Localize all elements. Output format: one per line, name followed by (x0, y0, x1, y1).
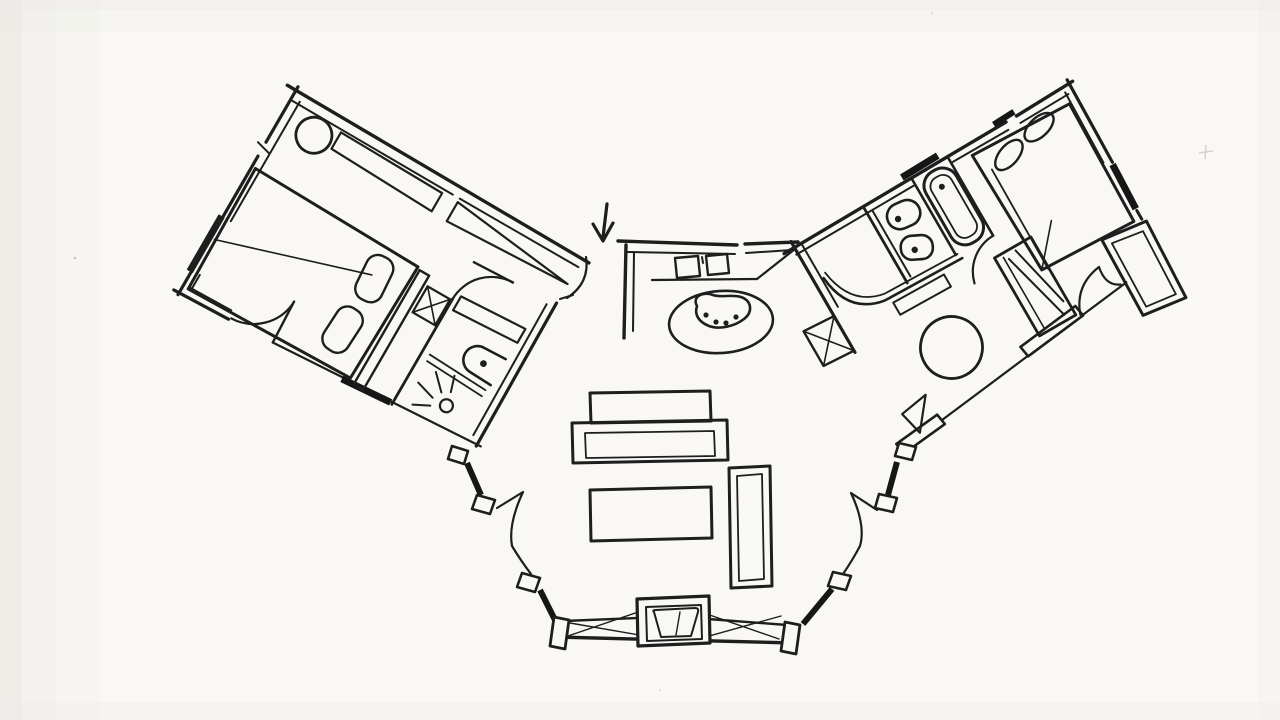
speck (74, 257, 77, 260)
kitchen-left-wall-outer (624, 245, 626, 338)
speck (659, 689, 661, 691)
seat-dot (733, 314, 738, 319)
kitchen-left-wall-inner (633, 252, 634, 331)
seat-dot (703, 312, 708, 317)
speck (931, 12, 933, 14)
corner-post (828, 572, 851, 590)
corner-post (472, 495, 495, 514)
counter-tick (702, 257, 703, 263)
scanned-floor-plan-page: Hand-drawn butterfly floor plan sketch (0, 0, 1280, 720)
corner-post (895, 443, 916, 460)
bottom-edge-shade (0, 702, 1280, 720)
seat-dot (723, 320, 728, 325)
counter-edge (652, 279, 757, 280)
left-edge-shade-3 (56, 0, 100, 720)
glazed-wall-end-slab (550, 617, 569, 649)
top-edge-shade (0, 0, 1280, 10)
seat-dot (713, 319, 718, 324)
top-edge-shade-2 (0, 10, 1280, 32)
corner-post (517, 573, 540, 592)
left-edge-shade (0, 0, 22, 720)
left-edge-shade-2 (22, 0, 56, 720)
floor-plan-sketch: Hand-drawn butterfly floor plan sketch (0, 0, 1280, 720)
right-edge-shade (1258, 0, 1280, 720)
corner-post (875, 494, 897, 512)
glazed-wall-end-slab (781, 622, 800, 654)
